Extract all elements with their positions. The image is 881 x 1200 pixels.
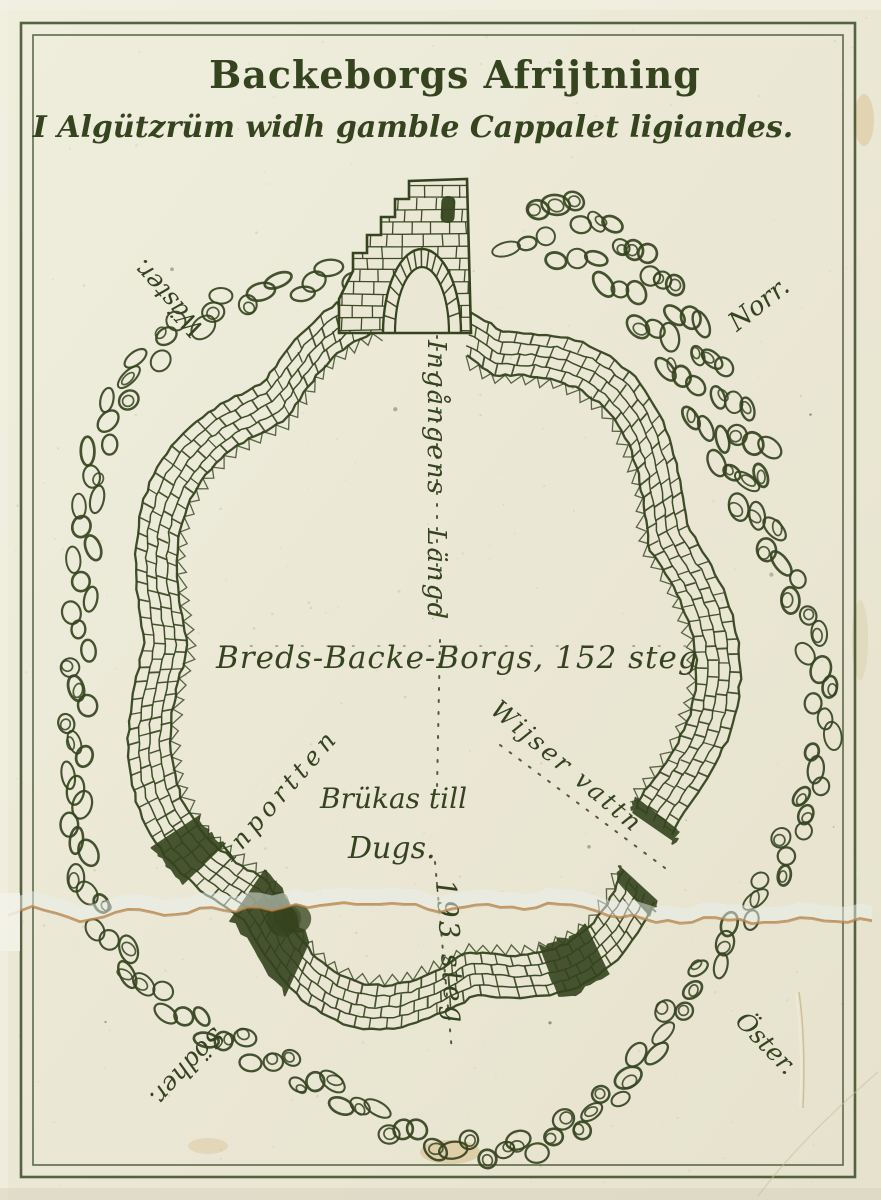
paper-edge-bottom xyxy=(0,1188,881,1200)
map-canvas: Backeborgs Afrijtning I Algützrüm widh g… xyxy=(0,0,881,1200)
paper-edge-left xyxy=(0,0,8,1200)
stain xyxy=(188,1138,228,1154)
breadth-label: Breds-Backe-Borgs, 152 steg xyxy=(215,640,699,676)
entrance-length-label: Ingångens Längd xyxy=(421,339,452,621)
map-subtitle: I Algützrüm widh gamble Cappalet ligiand… xyxy=(32,110,793,145)
scanned-map-page: Backeborgs Afrijtning I Algützrüm widh g… xyxy=(0,0,881,1200)
paper-edge-top xyxy=(0,0,881,10)
map-title: Backeborgs Afrijtning xyxy=(209,52,701,97)
stain xyxy=(854,94,874,146)
usage-note-line1: Brükas till xyxy=(319,782,467,815)
usage-note-line2: Dugs. xyxy=(347,831,436,866)
